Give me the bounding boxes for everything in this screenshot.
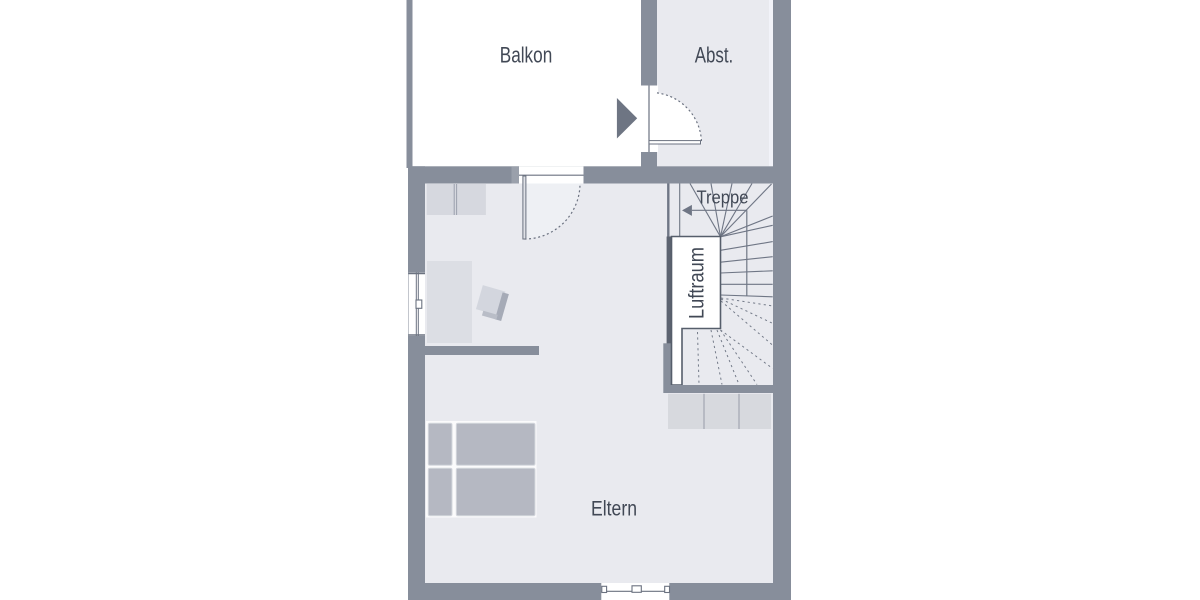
svg-text:Treppe: Treppe: [697, 186, 749, 207]
svg-text:Abst.: Abst.: [695, 43, 734, 68]
svg-text:Balkon: Balkon: [500, 43, 553, 68]
svg-text:Luftraum: Luftraum: [686, 247, 709, 319]
svg-text:Eltern: Eltern: [591, 497, 637, 521]
